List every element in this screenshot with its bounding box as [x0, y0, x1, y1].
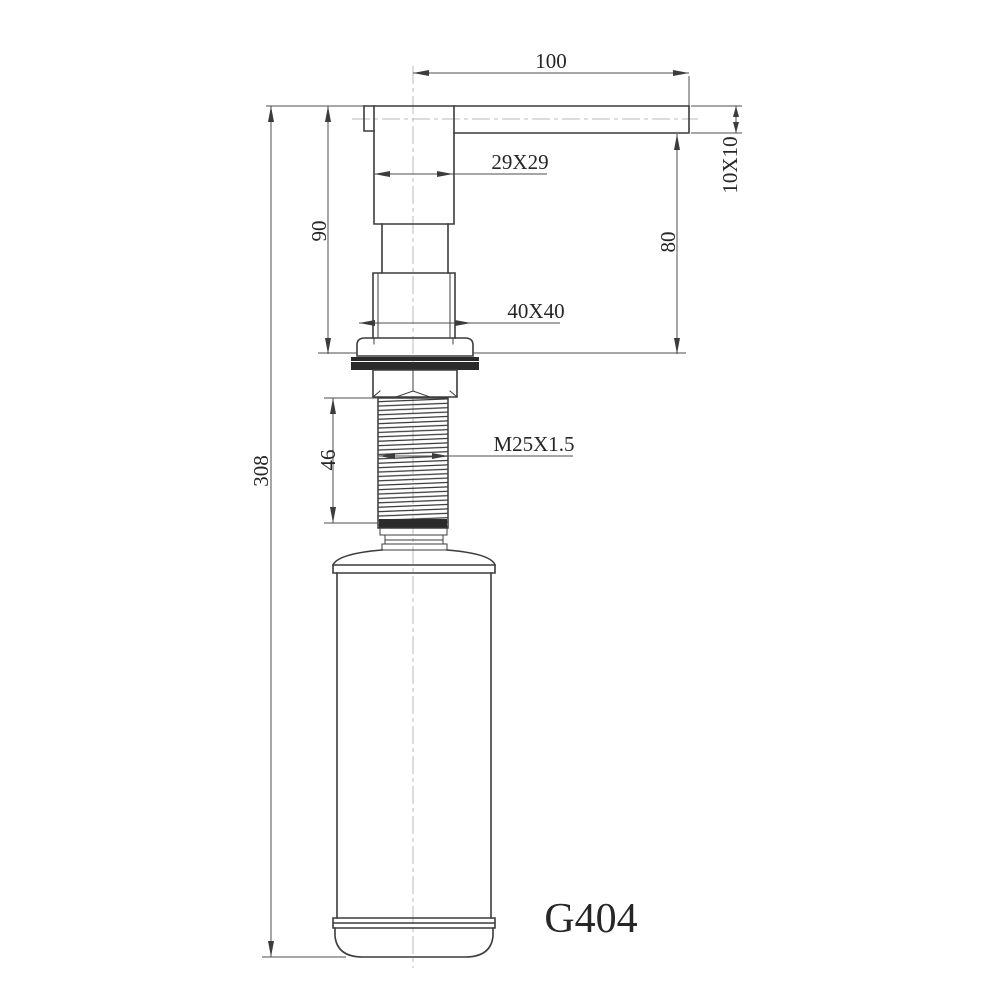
- dim-arrow: [330, 507, 336, 523]
- dim-head-section-label: 29X29: [491, 150, 548, 174]
- dim-arrow: [674, 338, 680, 354]
- pump-shaft: [382, 224, 448, 273]
- dim-arrow: [674, 134, 680, 150]
- dim-arrow: [413, 70, 429, 76]
- dim-arrow: [268, 941, 274, 957]
- dim-arrow: [733, 122, 739, 133]
- dim-arrow: [374, 171, 390, 177]
- dim-thread-length-label: 46: [316, 450, 340, 471]
- dim-arrow: [330, 398, 336, 414]
- dim-spout-section-label: 10X10: [718, 136, 742, 193]
- dim-arrow: [325, 338, 331, 354]
- dim-head-height: 90: [307, 106, 357, 354]
- dim-arrow: [359, 320, 375, 326]
- dim-thread-length: 46: [316, 398, 378, 523]
- bottle-shoulder-band: [333, 565, 495, 573]
- bottle-body: [337, 573, 491, 918]
- bottle-shoulder: [333, 550, 495, 565]
- dim-arrow: [673, 70, 689, 76]
- mounting-block-inner-edges: [378, 273, 450, 338]
- dim-arrow: [268, 106, 274, 122]
- dim-head-height-label: 90: [307, 221, 331, 242]
- bottle-bottom-cap: [335, 928, 493, 957]
- dispenser-assembly: [333, 106, 689, 957]
- gasket-seal-top: [351, 357, 479, 361]
- dim-spout-reach: 100: [413, 49, 689, 106]
- dim-arrow: [733, 106, 739, 117]
- model-label: G404: [544, 896, 637, 942]
- technical-drawing-page: 100 29X29 10X10 90: [0, 0, 1000, 1000]
- dim-spout-reach-label: 100: [535, 49, 567, 73]
- dim-thread-spec-label: M25X1.5: [493, 432, 574, 456]
- technical-drawing: 100 29X29 10X10 90: [0, 0, 1000, 1000]
- mounting-block: [373, 273, 455, 338]
- dim-spout-underside-height-label: 80: [656, 232, 680, 253]
- pump-head: [374, 106, 454, 224]
- bottle-bottom-band: [333, 918, 495, 928]
- dim-arrow: [437, 171, 453, 177]
- dim-arrow: [325, 106, 331, 122]
- dimensions: 100 29X29 10X10 90: [249, 49, 742, 957]
- dim-arrow: [455, 320, 471, 326]
- dim-total-height-label: 308: [249, 455, 273, 487]
- dim-head-section: 29X29: [374, 150, 549, 177]
- mounting-nut: [373, 370, 457, 397]
- dim-spout-section: 10X10: [691, 106, 742, 194]
- dim-flange-section-label: 40X40: [507, 299, 564, 323]
- mounting-nut-facets: [373, 370, 457, 397]
- dim-flange-section: 40X40: [359, 299, 565, 326]
- dim-total-height: 308: [249, 106, 346, 957]
- neck-ring-lower: [382, 544, 447, 550]
- gasket-seal: [351, 362, 479, 370]
- thread-end-band: [379, 519, 447, 528]
- threaded-shank: [378, 398, 448, 528]
